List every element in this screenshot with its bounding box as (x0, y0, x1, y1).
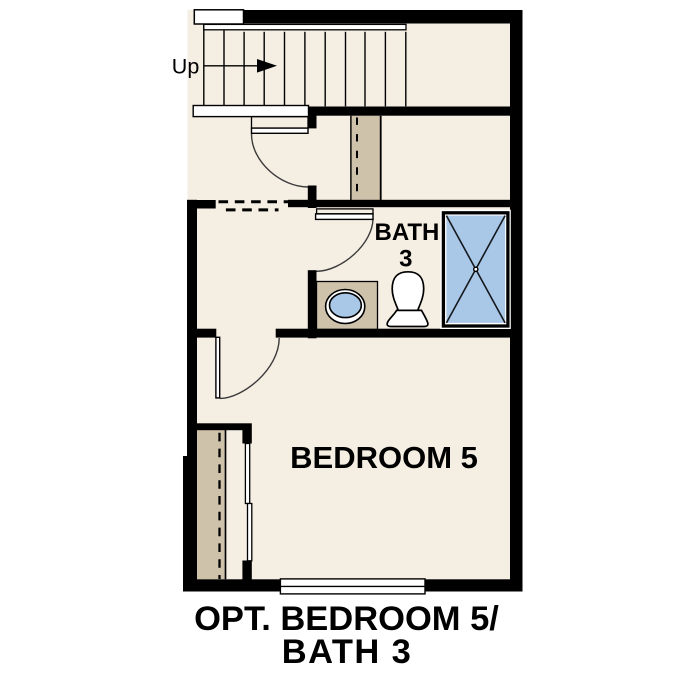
svg-text:3: 3 (399, 246, 412, 273)
svg-text:BEDROOM 5: BEDROOM 5 (290, 440, 478, 475)
svg-text:BATH: BATH (375, 219, 440, 246)
svg-text:Up: Up (172, 55, 200, 79)
svg-text:BATH 3: BATH 3 (282, 633, 412, 671)
